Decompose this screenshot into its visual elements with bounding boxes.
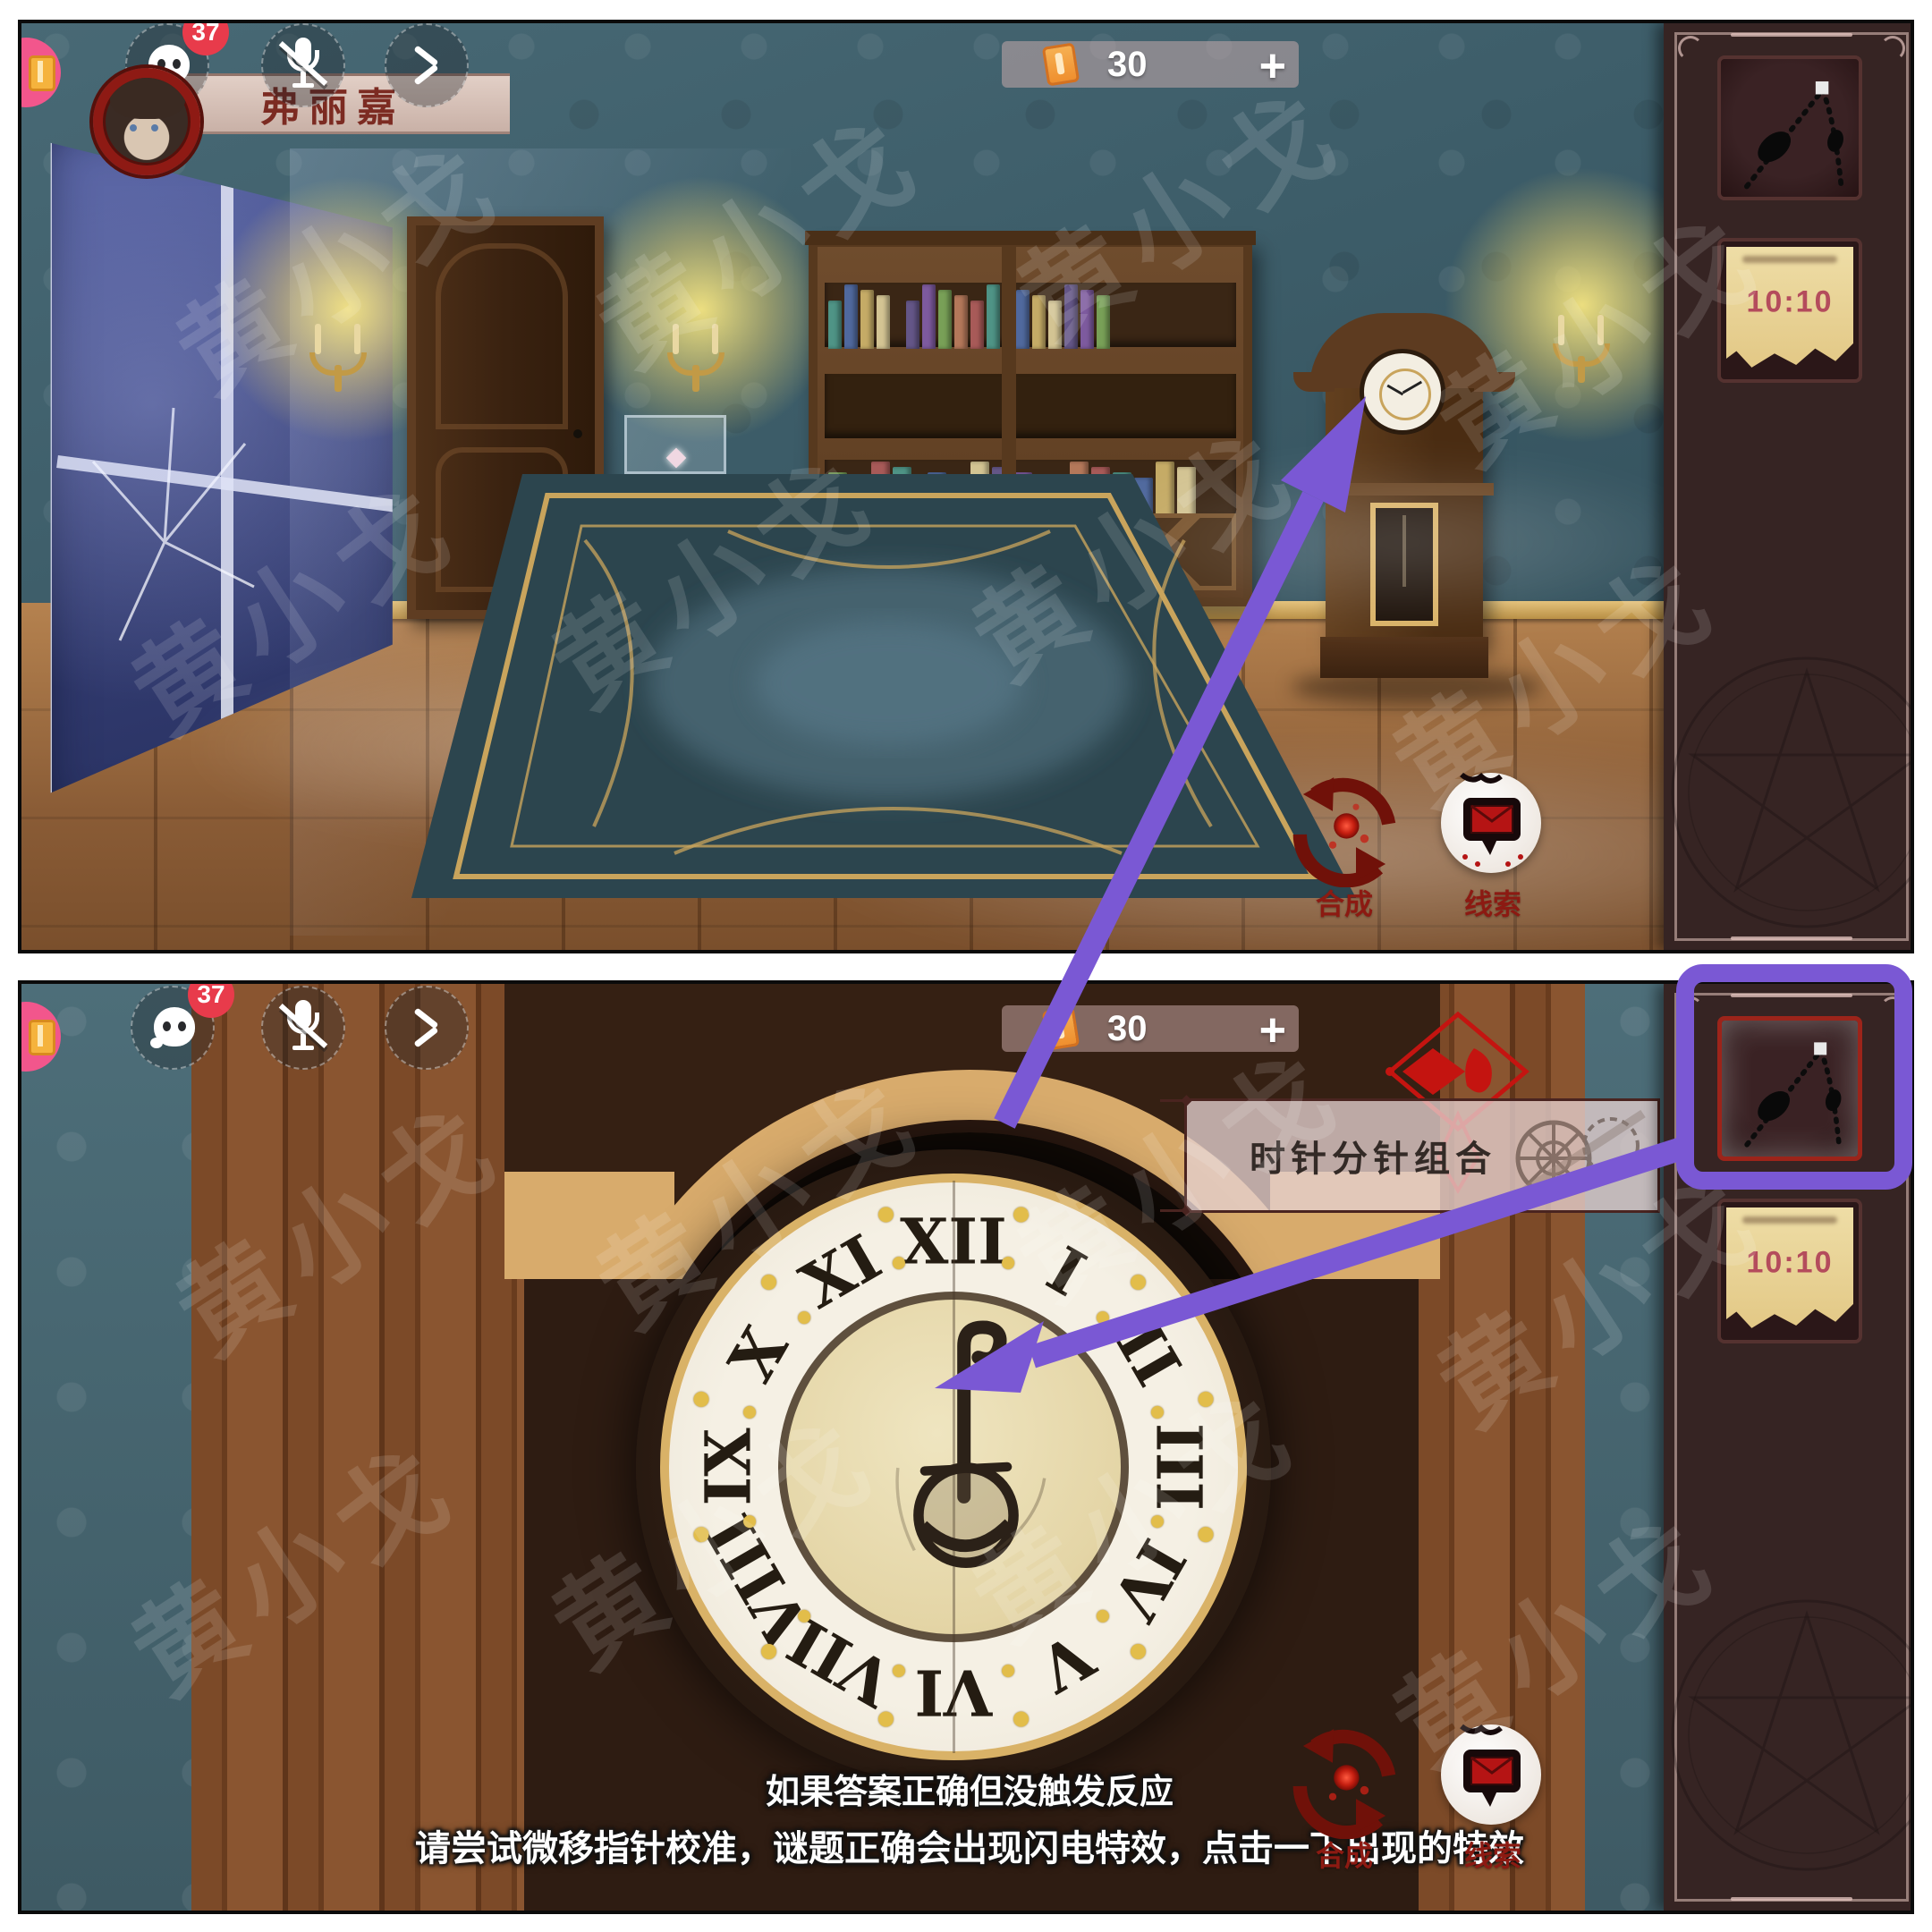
- synthesis-arrows-icon: [1286, 771, 1402, 887]
- clues-button[interactable]: 线索: [1435, 1723, 1551, 1875]
- book-spine: [828, 301, 842, 349]
- chat-ghost-icon: [154, 1007, 195, 1046]
- book-spine: [1016, 290, 1030, 349]
- expand-button[interactable]: [385, 986, 469, 1070]
- currency-amount: 30: [1107, 1009, 1148, 1049]
- hour-hand: [1386, 385, 1403, 396]
- shelf-row-empty: [825, 374, 1236, 438]
- screenshot-canvas: 37 弗丽嘉 30 +: [0, 0, 1932, 1932]
- hint-line-2: 请尝试微移指针校准，谜题正确会出现闪电特效，点击一下出现的特效: [21, 1819, 1914, 1871]
- book-spine: [844, 284, 858, 349]
- time-note-text: 10:10: [1726, 1246, 1853, 1281]
- book-spine: [860, 290, 874, 349]
- time-note-paper: 10:10: [1726, 247, 1853, 374]
- currency-ticket-icon: [1042, 42, 1080, 86]
- book-spine: [1097, 295, 1110, 349]
- clues-button[interactable]: 线索: [1435, 771, 1551, 923]
- add-currency-button[interactable]: +: [1259, 1004, 1286, 1057]
- book-spine: [922, 284, 936, 349]
- book-spine: [1048, 301, 1062, 349]
- chevron-right-icon: [412, 46, 436, 85]
- books-row-top: [828, 267, 1233, 349]
- microphone-muted-icon: [275, 998, 331, 1057]
- expand-button[interactable]: [385, 23, 469, 107]
- book-spine: [1064, 284, 1078, 349]
- clues-label: 线索: [1435, 882, 1551, 923]
- clock-numeral-III: III: [1142, 1423, 1216, 1511]
- book-spine: [1032, 295, 1046, 349]
- add-currency-button[interactable]: +: [1259, 39, 1286, 93]
- clue-envelope-icon: [1435, 1723, 1551, 1839]
- book-spine: [954, 295, 968, 349]
- clock-numeral-IX: IX: [691, 1428, 766, 1505]
- synthesis-label: 合成: [1286, 1834, 1402, 1875]
- mute-button[interactable]: [261, 986, 345, 1070]
- clock-hands-item-icon: [1721, 59, 1859, 197]
- currency-bar: 30 +: [1002, 1005, 1299, 1052]
- book-spine: [1080, 290, 1094, 349]
- mute-button[interactable]: [261, 23, 345, 107]
- pentagram-decoration: [1655, 640, 1914, 945]
- synthesis-button[interactable]: 合成: [1286, 1723, 1402, 1875]
- carpet[interactable]: [406, 469, 1363, 903]
- room-scene-panel: 37 弗丽嘉 30 +: [18, 20, 1914, 953]
- book-spine: [970, 301, 984, 349]
- annotation-highlight-box: [1676, 964, 1912, 1190]
- microphone-muted-icon: [275, 36, 331, 95]
- time-note-text: 10:10: [1726, 285, 1853, 320]
- synthesis-button[interactable]: 合成: [1286, 771, 1402, 923]
- candle-sconce: [657, 318, 737, 399]
- character-avatar[interactable]: [93, 68, 200, 175]
- inventory-slot-time-note[interactable]: 10:10: [1717, 1199, 1862, 1343]
- currency-bar: 30 +: [1002, 41, 1299, 88]
- gear-decoration-icon: [1500, 1103, 1652, 1212]
- currency-amount: 30: [1107, 45, 1148, 85]
- door-knob: [573, 429, 582, 438]
- currency-ticket-icon: [1042, 1006, 1080, 1050]
- grandfather-clock-face[interactable]: [1360, 349, 1445, 435]
- inventory-sidebar: 10:10: [1664, 23, 1914, 950]
- item-tooltip: 时针分针组合: [1184, 1098, 1660, 1213]
- clock-center-ornament[interactable]: [868, 1313, 1064, 1581]
- tooltip-label: 时针分针组合: [1250, 1130, 1496, 1182]
- pentagram-decoration: [1655, 1583, 1914, 1887]
- book-spine: [906, 301, 919, 349]
- clues-label: 线索: [1435, 1834, 1551, 1875]
- inventory-slot-clock-hands[interactable]: [1717, 55, 1862, 200]
- book-spine: [877, 295, 890, 349]
- clock-closeup-panel: XIIIIIIIIIVVVIVIIVIIIIXXXI 时针分针组合: [18, 980, 1914, 1914]
- candle-sconce: [299, 318, 379, 399]
- hint-line-1: 如果答案正确但没触发反应: [21, 1764, 1914, 1813]
- chat-button[interactable]: 37: [131, 986, 215, 1070]
- synthesis-label: 合成: [1286, 882, 1402, 923]
- book-spine: [938, 290, 952, 349]
- synthesis-arrows-icon: [1286, 1723, 1402, 1839]
- time-note-paper: 10:10: [1726, 1207, 1853, 1335]
- candle-glow: [567, 175, 835, 444]
- book-spine: [987, 284, 1000, 349]
- clue-envelope-icon: [1435, 771, 1551, 887]
- chevron-right-icon: [412, 1008, 436, 1047]
- minute-hand: [1402, 381, 1422, 394]
- inventory-slot-time-note[interactable]: 10:10: [1717, 238, 1862, 383]
- candle-sconce: [1542, 309, 1623, 390]
